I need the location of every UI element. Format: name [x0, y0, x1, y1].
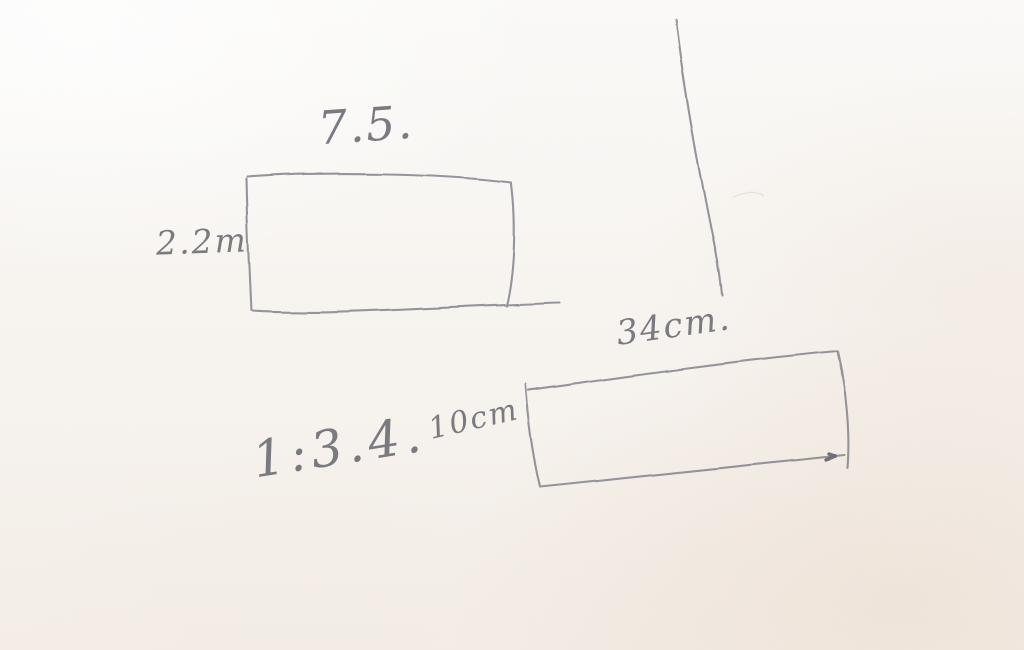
paper-background: 7.5. 2.2m 34cm. 10cm 1:3.4. [0, 0, 1024, 650]
paper-grain-texture [0, 0, 1024, 650]
rect1-width-label: 7.5. [316, 95, 415, 156]
rect1-height-label: 2.2m [155, 220, 248, 262]
pencil-sketch-svg [0, 0, 1024, 650]
